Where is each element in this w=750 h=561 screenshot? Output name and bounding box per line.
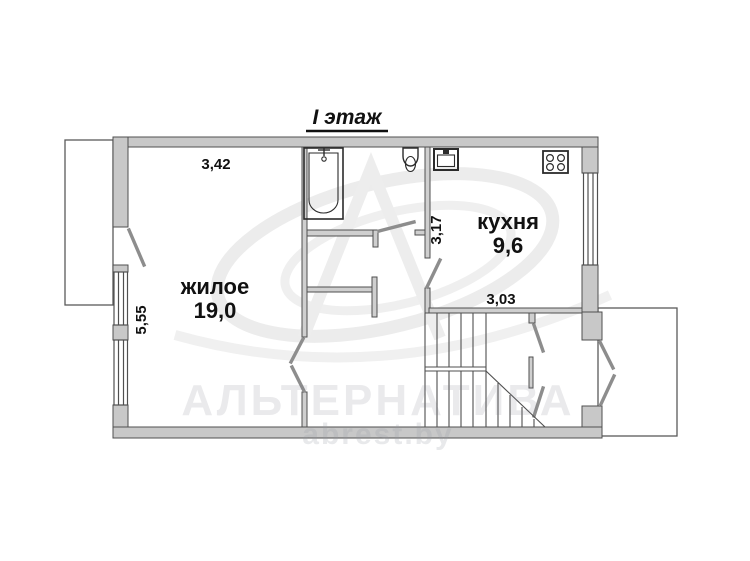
- right-wall-bay-lower-stub: [582, 406, 602, 427]
- right-wall-upper: [582, 147, 598, 173]
- watermark-logo-swirl: [175, 144, 610, 367]
- living-window-lower: [113, 340, 128, 405]
- entry-door-leaf-a: [534, 325, 543, 351]
- bathroom-wall: [307, 230, 373, 236]
- dim-living-width: 3,42: [201, 156, 230, 173]
- kitchen-area: 9,6: [493, 233, 524, 258]
- dim-kitchen-height: 3,17: [428, 215, 445, 244]
- watermark-text: АЛЬТЕРНАТИВА abrest.by: [181, 376, 574, 451]
- floorplan-image: I этаж: [0, 0, 750, 561]
- watermark-site: abrest.by: [302, 418, 453, 451]
- dim-kitchen-width: 3,03: [486, 291, 515, 308]
- left-wall-stub: [113, 265, 128, 272]
- dim-living-height: 5,55: [133, 305, 150, 334]
- plan-title: I этаж: [312, 106, 383, 129]
- bathroom-wall-right-stub: [415, 230, 425, 235]
- kitchen-window: [582, 173, 598, 265]
- right-wall-bay-upper-stub: [582, 312, 602, 340]
- right-wall-mid: [582, 265, 598, 312]
- kitchen-sink-icon: [434, 149, 458, 170]
- living-room-area: 19,0: [194, 298, 237, 323]
- plan-title-group: I этаж: [306, 106, 388, 131]
- kitchen-name: кухня: [477, 209, 539, 234]
- floorplan-svg: I этаж: [0, 0, 750, 561]
- top-wall: [113, 137, 598, 147]
- living-room-name: жилое: [180, 274, 249, 299]
- hall-niche-pier: [372, 277, 377, 317]
- left-wall-lower: [113, 405, 128, 427]
- toilet-icon: [403, 148, 418, 172]
- hall-niche-wall: [307, 287, 377, 292]
- left-annex-outline: [65, 140, 113, 305]
- left-wall-pier: [113, 325, 128, 340]
- bathroom-door-jamb: [373, 230, 378, 247]
- left-wall-upper: [113, 137, 128, 227]
- kitchen-bottom-wall: [429, 308, 582, 313]
- entry-door-jamb-upper: [529, 313, 535, 323]
- kitchen-door-leaf: [427, 260, 440, 287]
- living-window-upper: [113, 272, 128, 325]
- right-annex-outline: [598, 308, 677, 436]
- stove-icon: [543, 151, 568, 173]
- left-exterior-door-leaf: [129, 230, 144, 265]
